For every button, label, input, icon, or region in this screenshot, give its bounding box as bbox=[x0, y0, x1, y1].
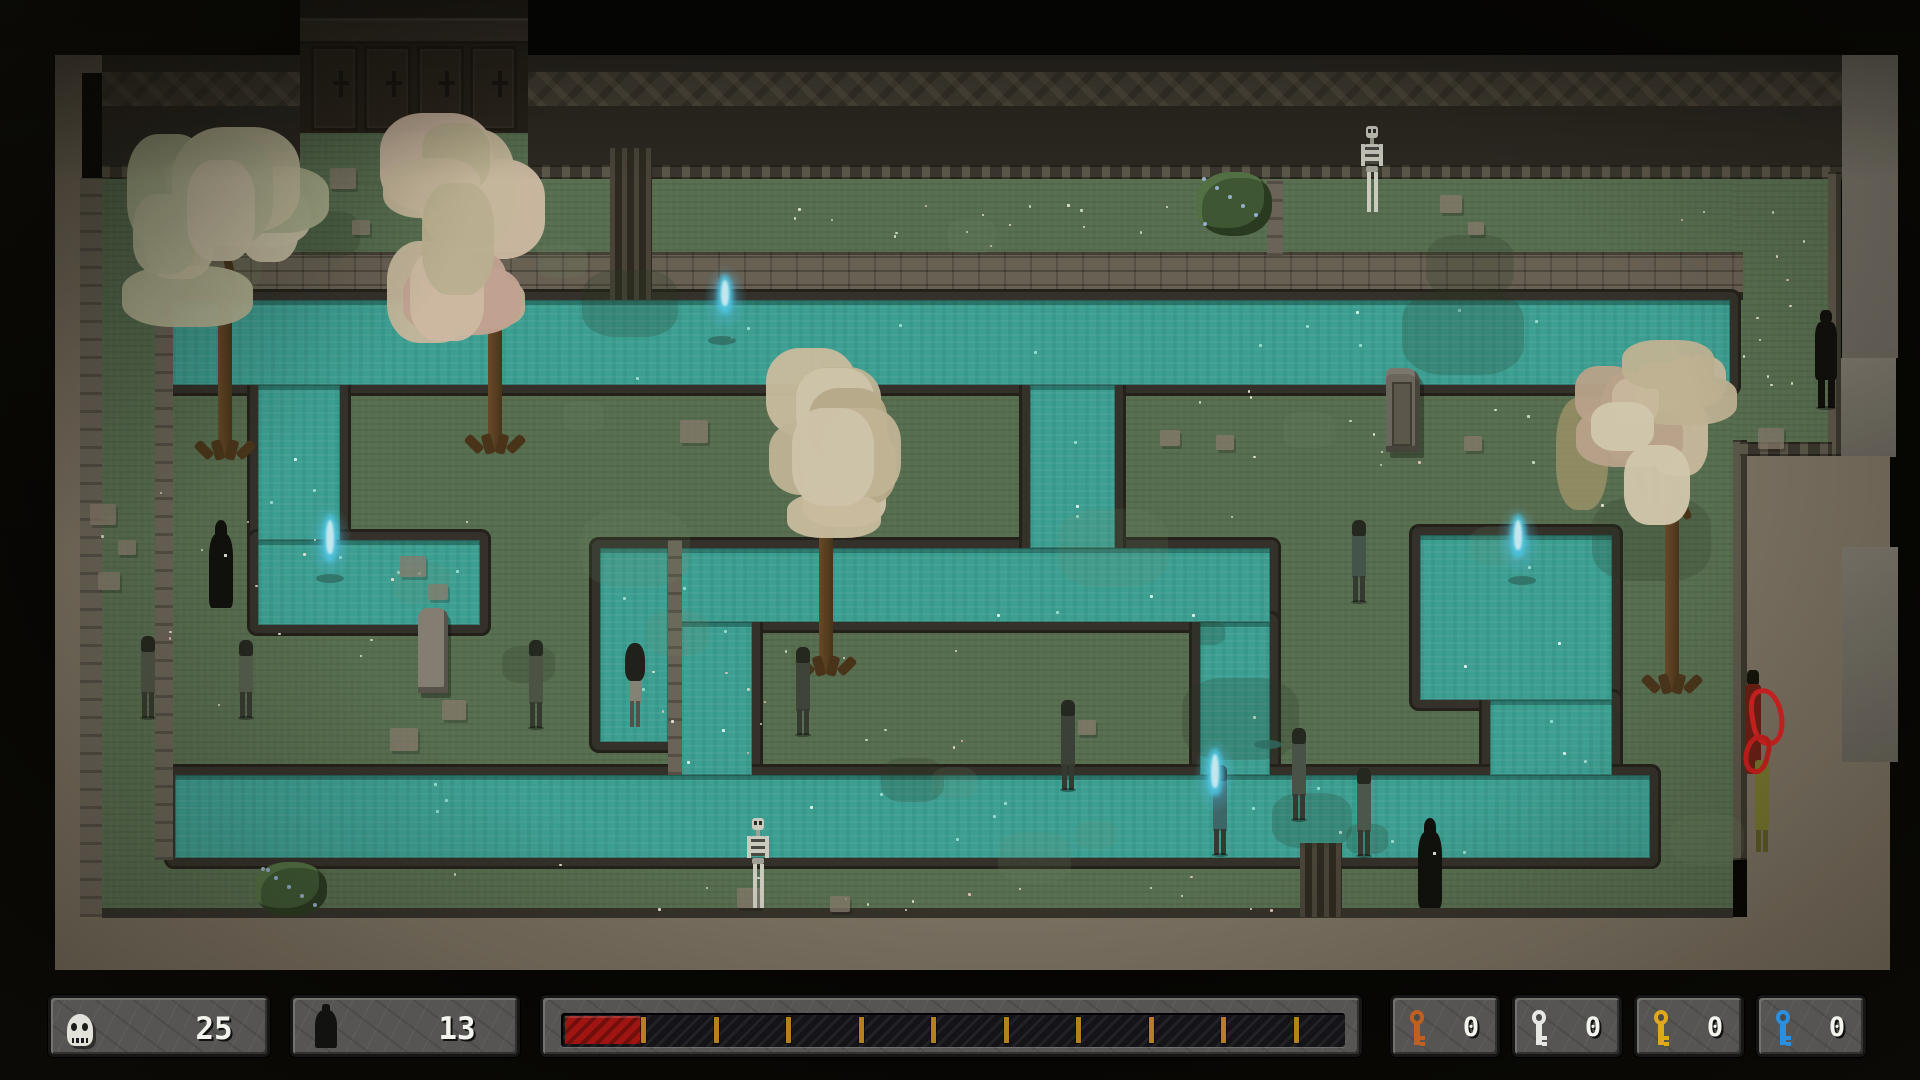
soul-wisp-left[interactable] bbox=[308, 504, 352, 580]
fish-shadow bbox=[316, 574, 344, 583]
grave-monument bbox=[1386, 368, 1420, 452]
bush-flower bbox=[1254, 213, 1258, 217]
tree-canopy bbox=[187, 160, 255, 261]
fence-bottom bbox=[1300, 843, 1342, 917]
shadow-figure-east[interactable] bbox=[1813, 310, 1839, 408]
zombie-in-canal[interactable] bbox=[1355, 768, 1372, 856]
bush-bottom-left bbox=[255, 862, 327, 916]
paving-stone bbox=[1468, 222, 1484, 235]
bush-flower bbox=[313, 903, 317, 907]
game-screen: 25130000 bbox=[0, 0, 1920, 1080]
zombie-center[interactable] bbox=[1058, 700, 1078, 790]
bush-top-right bbox=[1196, 172, 1272, 236]
health-segment-tick bbox=[714, 1017, 719, 1043]
soul-wisp-top[interactable] bbox=[703, 264, 747, 332]
skeleton-bottom[interactable] bbox=[746, 818, 770, 910]
health-bar-fill bbox=[565, 1016, 641, 1044]
fish-shadow bbox=[1508, 576, 1536, 585]
health-segment-tick bbox=[1294, 1017, 1299, 1043]
frame-left bbox=[55, 55, 82, 917]
orange-key-panel: 0 bbox=[1390, 995, 1500, 1057]
tree-canopy bbox=[1591, 402, 1654, 451]
figure-count: 13 bbox=[409, 1014, 505, 1046]
health-segment-tick bbox=[1221, 1017, 1226, 1043]
paving-stone bbox=[1758, 428, 1784, 449]
south-field-line bbox=[102, 908, 1733, 918]
orange-key-icon bbox=[1409, 1010, 1425, 1046]
zombie-far-left[interactable] bbox=[139, 636, 156, 718]
paving-stone bbox=[1464, 436, 1482, 451]
blossom-tree-center bbox=[752, 345, 904, 725]
paving-stone bbox=[390, 728, 418, 751]
bush-flower bbox=[266, 868, 270, 872]
paving-stone bbox=[680, 420, 708, 443]
silver-key-panel: 0 bbox=[1512, 995, 1622, 1057]
cloaked-reaper-left[interactable] bbox=[206, 520, 236, 612]
paving-stone bbox=[1216, 435, 1234, 450]
paving-stone bbox=[1078, 720, 1096, 735]
health-segment-tick bbox=[1004, 1017, 1009, 1043]
door-lintel bbox=[300, 18, 528, 44]
tree-canopy bbox=[792, 408, 874, 506]
black-east-edge bbox=[1898, 0, 1920, 1080]
paving-stone bbox=[90, 504, 116, 525]
health-segment-tick bbox=[786, 1017, 791, 1043]
paving-stone bbox=[118, 540, 136, 555]
tree-canopy bbox=[1622, 340, 1714, 390]
blossom-tree-nw bbox=[106, 105, 330, 505]
bush-flower bbox=[1202, 177, 1206, 181]
health-segment-tick bbox=[859, 1017, 864, 1043]
orange-key-count: 0 bbox=[1451, 1014, 1491, 1046]
paving-stone bbox=[442, 700, 466, 720]
zombie-bank[interactable] bbox=[1290, 728, 1308, 820]
paving-stone bbox=[830, 896, 850, 912]
gold-key-panel: 0 bbox=[1634, 995, 1744, 1057]
soul-wisp-bottom[interactable] bbox=[1193, 738, 1237, 814]
east-step-wall bbox=[1740, 442, 1832, 456]
bush-flower bbox=[1228, 195, 1232, 199]
ribbon-figure[interactable] bbox=[1742, 670, 1784, 855]
silver-key-count: 0 bbox=[1573, 1014, 1613, 1046]
skull-count: 25 bbox=[169, 1014, 259, 1046]
zombie-mid-left[interactable] bbox=[527, 640, 545, 728]
right-outer-grey-upper bbox=[1842, 55, 1898, 358]
health-segment-tick bbox=[1076, 1017, 1081, 1043]
zombie-by-tree[interactable] bbox=[793, 647, 812, 735]
paving-stone bbox=[428, 584, 448, 600]
bush-flower bbox=[1203, 222, 1207, 226]
zombie-left[interactable] bbox=[237, 640, 254, 718]
soul-wisp-right[interactable] bbox=[1496, 504, 1540, 576]
fish-shadow bbox=[708, 336, 736, 345]
bush-flower bbox=[300, 894, 304, 898]
blue-key-count: 0 bbox=[1817, 1014, 1857, 1046]
blossom-tree-n bbox=[368, 110, 558, 525]
paving-stone bbox=[1440, 195, 1462, 213]
bush-flower bbox=[1241, 204, 1245, 208]
zombie-islet[interactable] bbox=[1350, 520, 1367, 602]
silver-key-icon bbox=[1531, 1010, 1547, 1046]
bush-flower bbox=[261, 867, 265, 871]
ghost-girl-in-water[interactable] bbox=[622, 643, 647, 727]
gold-key-icon bbox=[1653, 1010, 1669, 1046]
right-grey-column bbox=[1842, 547, 1900, 762]
wisp-core bbox=[1514, 520, 1522, 550]
gravestone bbox=[418, 608, 448, 693]
health-bar-panel bbox=[540, 995, 1362, 1057]
tree-canopy bbox=[422, 183, 494, 295]
skull-counter-panel: 25 bbox=[48, 995, 270, 1057]
skull-icon bbox=[67, 1014, 93, 1046]
health-segment-tick bbox=[931, 1017, 936, 1043]
tree-trunk bbox=[1665, 502, 1679, 692]
paving-stone bbox=[98, 572, 120, 590]
wisp-core bbox=[721, 280, 729, 306]
blue-key-icon bbox=[1775, 1010, 1791, 1046]
tree-canopy bbox=[1624, 445, 1690, 525]
health-segment-tick bbox=[1149, 1017, 1154, 1043]
mid-canal bbox=[600, 548, 1270, 622]
gold-key-count: 0 bbox=[1695, 1014, 1735, 1046]
figure-counter-panel: 13 bbox=[290, 995, 520, 1057]
cloaked-reaper-bottom[interactable] bbox=[1414, 818, 1446, 912]
bush-flower bbox=[1215, 186, 1219, 190]
paving-stone bbox=[330, 168, 356, 189]
left-outer-column bbox=[80, 178, 102, 917]
fish-shadow bbox=[1254, 740, 1282, 749]
right-alcove bbox=[1832, 358, 1896, 457]
monument-door bbox=[1392, 382, 1412, 446]
figure-icon bbox=[315, 1010, 337, 1048]
health-bar-track bbox=[561, 1013, 1345, 1047]
frame-bottom bbox=[55, 917, 1890, 970]
blue-key-panel: 0 bbox=[1756, 995, 1866, 1057]
paving-stone bbox=[400, 556, 426, 577]
blossom-tree-e bbox=[1572, 333, 1748, 727]
wisp-core bbox=[326, 520, 334, 554]
health-segment-tick bbox=[641, 1017, 646, 1043]
skeleton-top[interactable] bbox=[1360, 126, 1384, 214]
bush-flower bbox=[274, 876, 278, 880]
paving-stone bbox=[1160, 430, 1180, 446]
bush-flower bbox=[287, 885, 291, 889]
wisp-core bbox=[1211, 754, 1219, 788]
